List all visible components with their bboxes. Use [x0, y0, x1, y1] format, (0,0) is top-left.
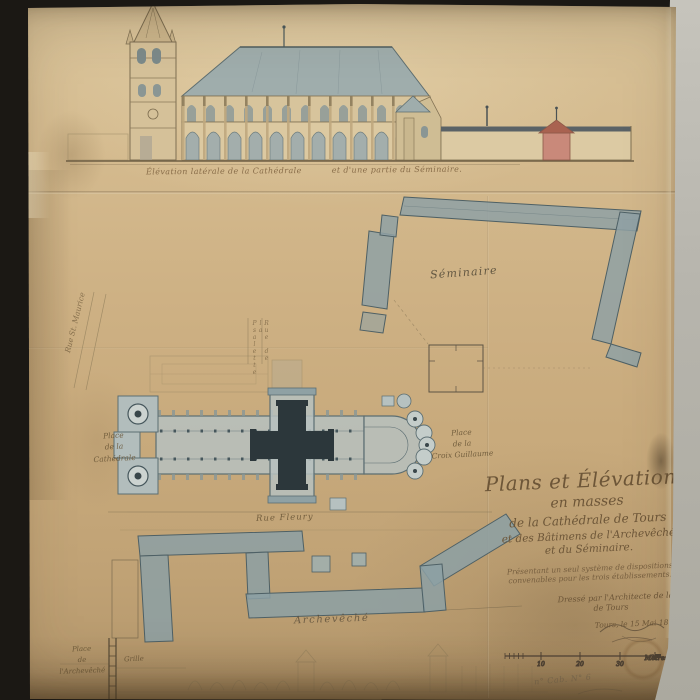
wall-coping — [441, 127, 631, 132]
seminaire-east-range — [592, 212, 640, 344]
pencil-scribble — [578, 689, 622, 694]
seminaire-plan — [360, 197, 641, 392]
chevet — [396, 96, 441, 160]
grille-label: Grille — [124, 655, 144, 664]
outbuildings-west — [112, 560, 138, 638]
seminaire-west-range — [362, 231, 394, 309]
west-portal — [140, 136, 152, 160]
seminaire-east-foot — [606, 344, 641, 367]
rue-fleury-label: Rue Fleury — [256, 512, 314, 524]
nave — [182, 25, 430, 160]
scanned-architectural-drawing: 10 20 30 Mètres Élévation latérale de la… — [0, 0, 700, 700]
paper-sheet: 10 20 30 Mètres Élévation latérale de la… — [0, 0, 700, 700]
sacristy-plan — [397, 394, 411, 408]
low-building-left — [68, 134, 128, 160]
garden-sketch — [60, 644, 548, 692]
cathedral-floor-plan — [114, 388, 435, 510]
rue-psalette-label: Rue de la Psalette — [251, 320, 269, 372]
cloister-outline — [150, 356, 302, 392]
seminaire-north-range — [400, 197, 641, 231]
outbuilding-outline — [429, 345, 483, 392]
place-croix-guillaume-label: Place de la Croix Guillaume — [415, 426, 509, 463]
crossing-cross — [250, 400, 334, 490]
buttresses — [182, 96, 430, 160]
scale-bar: 10 20 30 Mètres — [505, 652, 669, 668]
west-tower — [126, 0, 176, 160]
scale-tick-30: 30 — [616, 661, 624, 668]
nave-roof — [182, 47, 430, 97]
title-block: Plans et Élévations en masses de la Cath… — [479, 464, 700, 635]
archeveche-north-wing — [138, 531, 304, 556]
tree-row — [188, 681, 400, 691]
place-archeveche-label: Place de l'Archevêché — [41, 643, 122, 679]
archeveche-west-wing — [140, 555, 173, 642]
place-cathedrale-label: Place de la Cathédrale — [71, 428, 157, 466]
elevation-caption-right: et d'une partie du Séminaire. — [332, 165, 463, 175]
scale-tick-20: 20 — [575, 661, 584, 668]
cathedral-elevation — [66, 0, 634, 165]
scale-tick-10: 10 — [537, 661, 545, 668]
red-pavilion — [543, 133, 570, 160]
seminary-wall-elevation — [441, 106, 631, 161]
elevation-caption-left: Élévation latérale de la Cathédrale — [146, 166, 302, 176]
